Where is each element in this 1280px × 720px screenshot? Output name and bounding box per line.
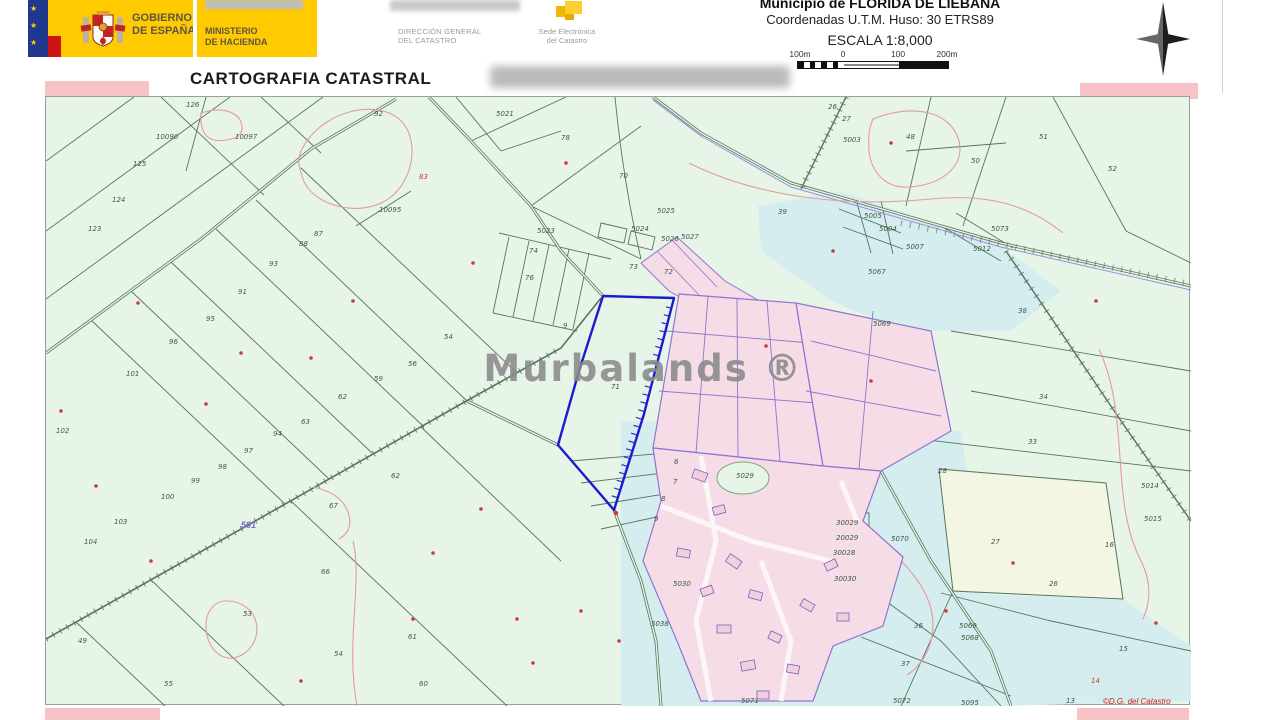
parcel-label: 5014 [1141,482,1159,490]
parcel-label: 5023 [537,227,555,235]
parcel-label: 6 [674,458,679,466]
parcel-label: 5004 [879,225,897,233]
scale-bar: 100m 0 100 200m [780,49,970,71]
parcel-label: 10097 [235,133,258,141]
parcel-label: 38 [1018,307,1027,315]
parcel-label: 67 [329,502,338,510]
parcel-label: 74 [529,247,538,255]
parcel-label: 34 [1039,393,1048,401]
redaction-bar-reference [490,66,790,88]
parcel-label: 102 [56,427,70,435]
gobierno-logo-band: ★ ★ ★ GOBIERNO DE ESPAÑA MINISTERIO D [28,0,317,57]
parcel-label: 27 [991,538,1000,546]
parcel-label: 26 [1049,580,1058,588]
parcel-label: 98 [218,463,227,471]
parcel-label: 30030 [834,575,857,583]
parcel-label: 66 [321,568,330,576]
parcel-label: 60 [419,680,428,688]
scalebar-label-0: 0 [841,49,846,59]
parcel-label: 20029 [836,534,859,542]
parcel-label: 5012 [973,245,991,253]
parcel-label: 76 [525,274,534,282]
page-title: CARTOGRAFIA CATASTRAL [190,69,431,89]
scale-text: ESCALA 1:8,000 [700,32,1060,48]
parcel-label: 91 [238,288,247,296]
page-edge-line [1222,0,1223,93]
parcel-label: 51 [1039,133,1048,141]
parcel-label: 101 [126,370,139,378]
parcel-label: 61 [408,633,417,641]
parcel-label: 53 [243,610,252,618]
parcel-label: 5021 [496,110,514,118]
north-compass-icon [1128,0,1198,82]
spain-flag-icon [48,0,61,57]
parcel-label: 36 [914,622,923,630]
parcel-label: 9 [563,322,568,330]
scalebar-label-200m: 200m [936,49,957,59]
parcel-label: 103 [114,518,127,526]
parcel-label: 70 [619,172,628,180]
parcel-label: 33 [1028,438,1037,446]
parcel-label: 48 [906,133,915,141]
scalebar-label-100: 100 [891,49,905,59]
redaction-pink-bottom-right [1077,708,1189,720]
parcel-label: 5068 [961,634,979,642]
parcel-label: 54 [444,333,453,341]
parcel-label: 97 [244,447,253,455]
municipio-title: Municipio de FLORIDA DE LIEBANA [700,0,1060,11]
parcel-label: 50 [971,157,980,165]
parcel-label: 39 [778,208,787,216]
parcel-label: 30028 [833,549,856,557]
parcel-label: 62 [391,472,400,480]
sede-electronica-icon [552,1,592,21]
gobierno-line1: GOBIERNO [132,12,195,25]
parcel-label: 10090 [156,133,179,141]
parcel-label: 5071 [741,697,759,705]
parcel-label: 30029 [836,519,859,527]
parcel-label: 63 [301,418,310,426]
parcel-label: 5070 [891,535,909,543]
parcel-label: 100 [161,493,175,501]
parcel-label: 93 [269,260,278,268]
parcel-label: 104 [84,538,97,546]
parcel-label: 62 [338,393,347,401]
parcel-label: 5073 [991,225,1009,233]
parcel-label: 52 [1108,165,1117,173]
parcel-label: 26 [828,103,837,111]
parcel-label: 88 [299,240,308,248]
ministerio-text: MINISTERIO DE HACIENDA [205,26,268,48]
parcel-label: 5095 [961,699,979,706]
parcel-label: 5025 [657,207,675,215]
parcel-label: 5027 [681,233,699,241]
cadastral-map: 1261009010097125124123928887939195961011… [45,96,1190,705]
parcel-label: 92 [374,110,383,118]
redaction-bar-header [390,0,520,11]
logo-divider [193,0,197,57]
scalebar-label-100m-left: 100m [789,49,810,59]
parcel-label: 78 [561,134,570,142]
redaction-bar-ministerio [205,0,303,9]
parcel-label: 87 [314,230,323,238]
watermark: Murbalands ® [483,347,802,390]
parcel-label: 5003 [843,136,861,144]
parcel-label: 83 [419,173,428,181]
gobierno-line2: DE ESPAÑA [132,25,195,38]
eu-flag-icon: ★ ★ ★ [28,0,48,57]
parcel-label: 56 [408,360,417,368]
parcel-label: 10095 [379,206,402,214]
scalebar-graphic [797,61,949,69]
parcel-label: 7 [673,478,678,486]
parcel-label: 14 [1091,677,1100,685]
parcel-label: 55 [164,680,173,688]
parcel-label: 28 [938,467,947,475]
parcel-label: 5007 [906,243,924,251]
parcel-label: 5038 [651,620,669,628]
parcel-label: 15 [1119,645,1128,653]
parcel-label: 96 [169,338,178,346]
parcel-label: 13 [1066,697,1075,705]
parcel-label: 5024 [631,225,649,233]
parcel-label: 5069 [959,622,977,630]
gobierno-text: GOBIERNO DE ESPAÑA [132,12,195,38]
parcel-label: 126 [186,101,200,109]
direccion-general-text: DIRECCIÓN GENERAL DEL CATASTRO [398,27,481,45]
parcel-label: 5069 [873,320,891,328]
parcel-label: 99 [191,477,200,485]
cadastral-map-svg: 1261009010097125124123928887939195961011… [46,97,1191,706]
parcel-label: 124 [112,196,125,204]
parcel-label: 59 [374,375,383,383]
sede-electronica-text: Sede Electrónica del Catastro [522,27,612,45]
parcel-label: 125 [133,160,147,168]
parcel-label: 49 [78,637,87,645]
parcel-label: 5072 [893,697,911,705]
redaction-pink-bottom-left [45,708,160,720]
parcel-label: 123 [88,225,101,233]
parcel-label: 5015 [1144,515,1162,523]
parcel-label: 5005 [864,212,882,220]
parcel-label: 16 [1105,541,1114,549]
parcel-label: 5029 [736,472,754,480]
parcel-label: 72 [664,268,673,276]
parcel-label: 8 [661,495,666,503]
parcel-label: 5030 [673,580,691,588]
utm-coordinates: Coordenadas U.T.M. Huso: 30 ETRS89 [700,12,1060,27]
road-number-label: 501 [241,520,256,530]
parcel-label: 94 [273,430,282,438]
cadastral-document: ★ ★ ★ GOBIERNO DE ESPAÑA MINISTERIO D [0,0,1280,720]
parcel-label: 5026 [661,235,679,243]
parcel-label: 5067 [868,268,886,276]
parcel-label: 27 [842,115,851,123]
spain-coat-of-arms-icon [80,5,126,53]
parcel-label: 95 [206,315,215,323]
parcel-label: 37 [901,660,910,668]
parcel-label: 73 [629,263,638,271]
catastro-credit: ©D.G. del Catastro [1103,697,1171,706]
parcel-label: 54 [334,650,343,658]
parcel-label: 9 [654,515,659,523]
